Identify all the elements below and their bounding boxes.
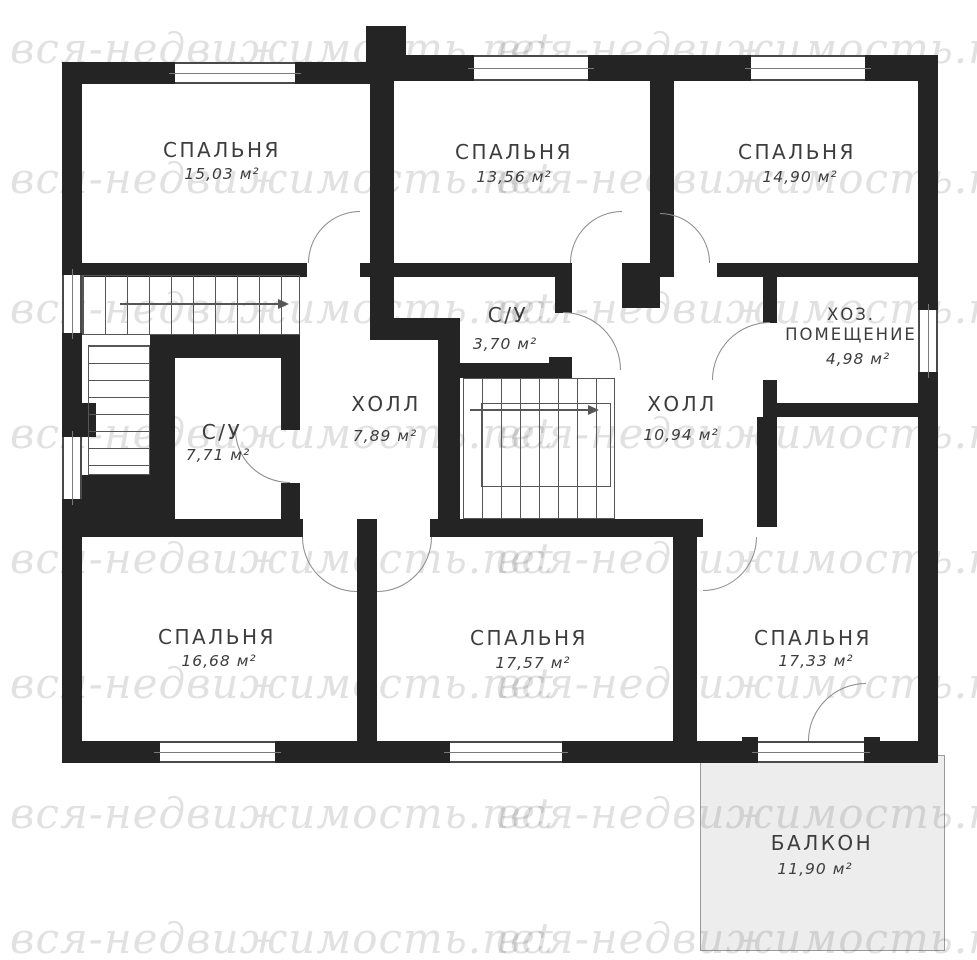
- wall: [555, 277, 572, 313]
- room-label-bedroom-top-middle: СПАЛЬНЯ: [455, 140, 573, 164]
- watermark: вся-недвижимость.net: [10, 158, 554, 200]
- chimney: [366, 26, 406, 81]
- wall: [438, 363, 572, 378]
- room-area-hall-west: 7,89 м²: [353, 427, 417, 445]
- wall: [763, 277, 777, 323]
- wall: [281, 483, 300, 521]
- watermark: вся-недвижимость.net: [496, 793, 977, 835]
- watermark: вся-недвижимость.net: [10, 538, 554, 580]
- wall: [717, 263, 938, 277]
- window: [751, 55, 865, 81]
- door-arc-bedroom-top-right: [660, 213, 710, 263]
- window: [62, 437, 82, 499]
- wall: [357, 519, 377, 763]
- watermark: вся-недвижимость.net: [10, 663, 554, 705]
- room-label-utility-line1: ХОЗ.: [827, 305, 875, 324]
- wall: [360, 263, 572, 277]
- wall: [281, 358, 300, 430]
- room-label-hall-west: ХОЛЛ: [351, 392, 421, 416]
- room-area-bedroom-bottom-right: 17,33 м²: [778, 652, 853, 670]
- room-label-bedroom-top-left: СПАЛЬНЯ: [163, 138, 281, 162]
- staircase-landing-outline: [481, 403, 611, 487]
- room-label-bedroom-bottom-middle: СПАЛЬНЯ: [470, 626, 588, 650]
- wall: [757, 417, 777, 527]
- wall: [370, 81, 394, 340]
- room-area-utility: 4,98 м²: [826, 350, 890, 368]
- stair-direction-line: [120, 303, 278, 305]
- room-area-bedroom-top-right: 14,90 м²: [762, 168, 837, 186]
- room-area-bedroom-top-middle: 13,56 м²: [476, 168, 551, 186]
- room-area-bedroom-top-left: 15,03 м²: [184, 165, 259, 183]
- window: [450, 741, 562, 763]
- window: [918, 310, 938, 372]
- watermark: вся-недвижимость.net: [10, 793, 554, 835]
- wall: [173, 335, 300, 358]
- staircase-lower-run: [88, 345, 150, 475]
- floor-plan: вся-недвижимость.net вся-недвижимость.ne…: [0, 0, 977, 960]
- room-area-bathroom-small: 3,70 м²: [473, 335, 537, 353]
- wall: [62, 519, 303, 537]
- wall: [370, 318, 438, 340]
- stair-direction-line: [470, 409, 590, 411]
- room-area-bedroom-bottom-left: 16,68 м²: [181, 652, 256, 670]
- room-label-bedroom-top-right: СПАЛЬНЯ: [738, 140, 856, 164]
- watermark: вся-недвижимость.net: [10, 918, 554, 960]
- window: [474, 55, 588, 81]
- wall: [673, 519, 697, 763]
- window: [175, 62, 295, 84]
- stair-direction-arrow: [588, 405, 599, 415]
- wall: [430, 519, 703, 537]
- window: [62, 275, 82, 333]
- room-area-bathroom-large: 7,71 м²: [186, 446, 250, 464]
- room-label-balcony: БАЛКОН: [771, 831, 873, 855]
- room-label-bathroom-large: С/У: [202, 420, 242, 444]
- watermark: вся-недвижимость.net: [496, 918, 977, 960]
- staircase-upper-run: [82, 275, 300, 335]
- room-label-bathroom-small: С/У: [488, 303, 528, 327]
- wall: [763, 403, 938, 417]
- door-arc-bedroom-bottom-middle: [377, 537, 432, 592]
- door-arc-bedroom-top-left: [308, 211, 360, 263]
- balcony-door-window: [758, 741, 864, 763]
- wall: [438, 318, 460, 524]
- room-label-utility-line2: ПОМЕЩЕНИЕ: [785, 325, 917, 344]
- door-arc-bedroom-top-middle: [570, 211, 622, 263]
- door-arc-bedroom-bottom-left: [302, 537, 357, 592]
- room-area-hall-east: 10,94 м²: [643, 426, 718, 444]
- room-label-bedroom-bottom-left: СПАЛЬНЯ: [158, 625, 276, 649]
- window: [160, 741, 275, 763]
- door-hinge: [742, 737, 758, 763]
- room-area-bedroom-bottom-middle: 17,57 м²: [495, 654, 570, 672]
- stair-direction-arrow: [278, 299, 289, 309]
- room-area-balcony: 11,90 м²: [777, 860, 852, 878]
- room-label-hall-east: ХОЛЛ: [647, 392, 717, 416]
- room-label-bedroom-bottom-right: СПАЛЬНЯ: [754, 626, 872, 650]
- door-hinge: [864, 737, 880, 763]
- watermark: вся-недвижимость.net: [496, 158, 977, 200]
